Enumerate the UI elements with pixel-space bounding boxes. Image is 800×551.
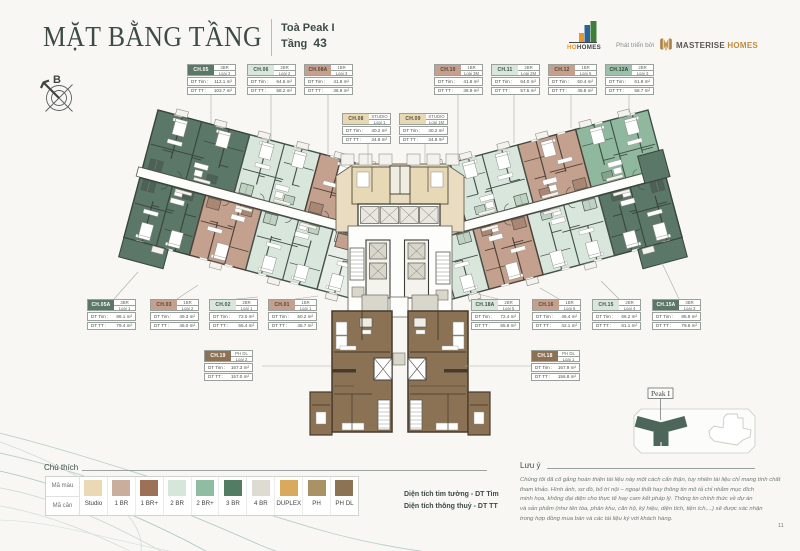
svg-text:HOHOMES: HOHOMES (567, 44, 601, 50)
svg-text:Peak I: Peak I (651, 389, 670, 398)
svg-text:B: B (53, 74, 61, 86)
